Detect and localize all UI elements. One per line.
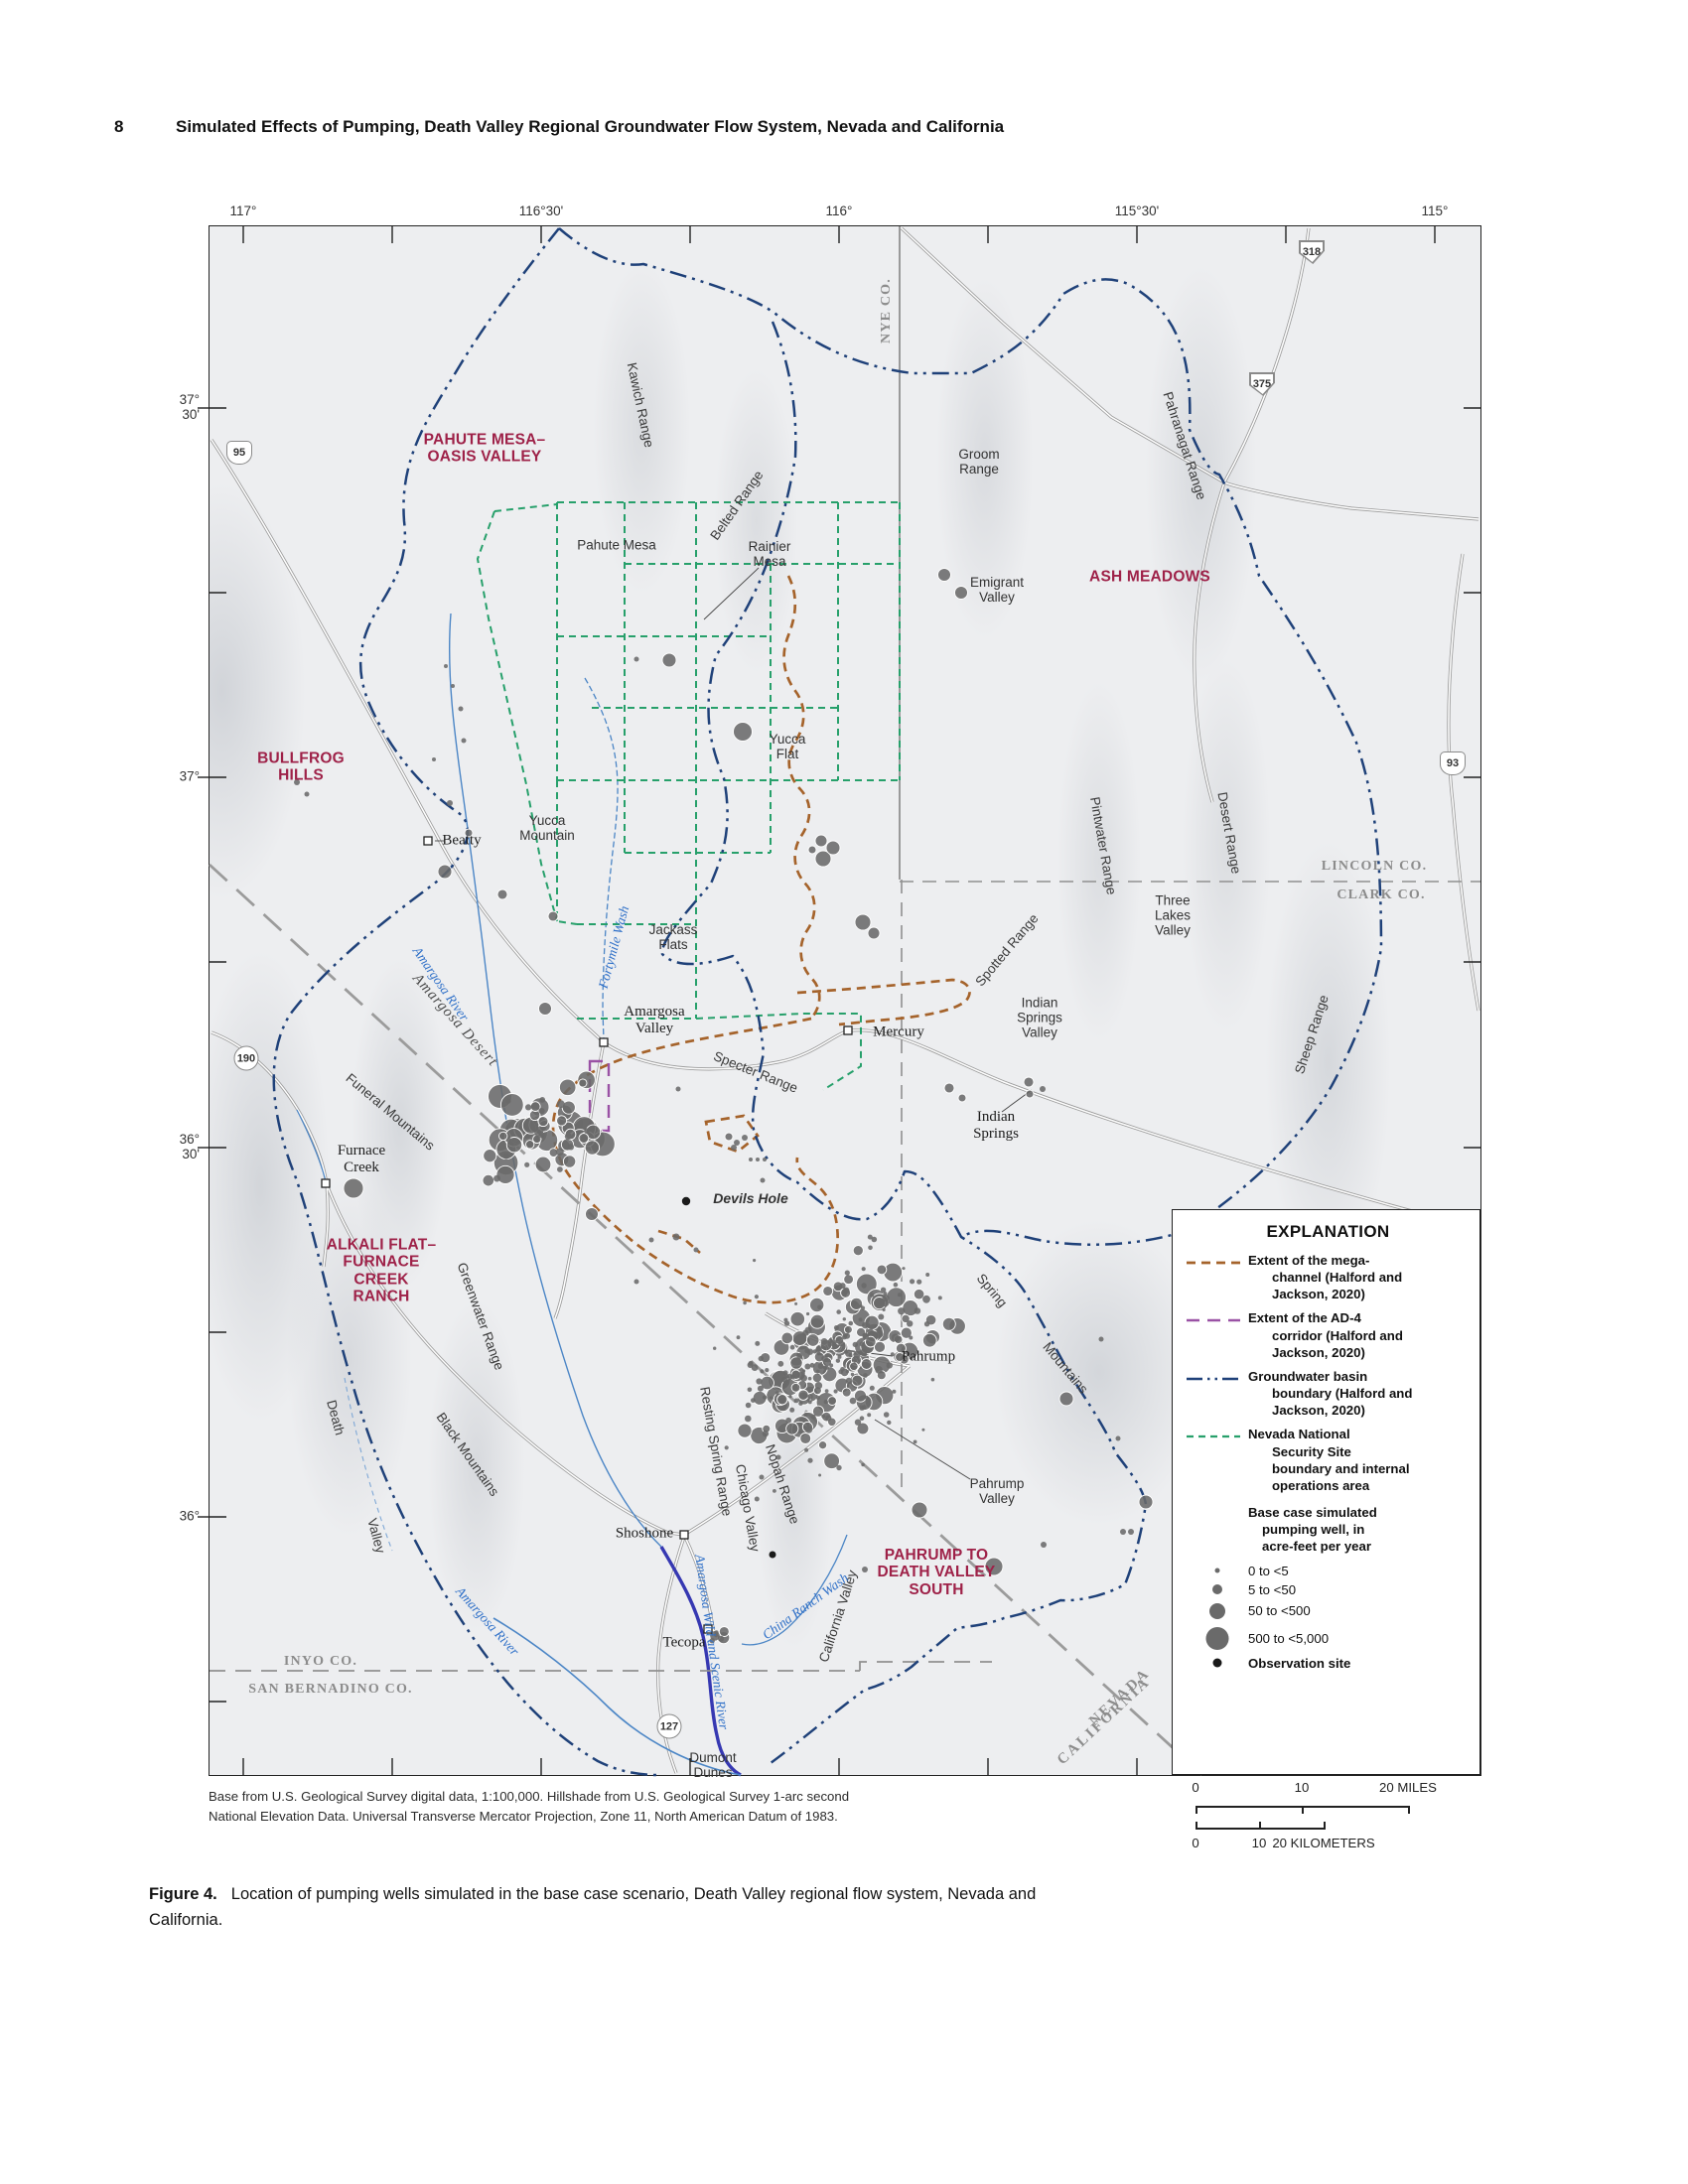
pumping-well: [840, 1367, 845, 1372]
pumping-well: [818, 1363, 824, 1369]
pumping-well: [763, 1158, 767, 1161]
pumping-well: [860, 1341, 865, 1346]
pumping-well: [914, 1307, 921, 1314]
legend-size-50-to-500: 50 to <500: [1187, 1601, 1470, 1621]
pumping-well: [734, 723, 753, 742]
pumping-well: [816, 1351, 820, 1355]
pumping-well: [790, 1375, 795, 1380]
pumping-well: [1120, 1529, 1126, 1535]
pumping-well: [794, 1302, 797, 1305]
well-size-symbol: [1204, 1564, 1230, 1577]
pumping-well: [804, 1413, 808, 1417]
axis-top-116: 116°: [826, 204, 853, 218]
pumping-well: [483, 1174, 494, 1186]
pumping-well: [854, 1390, 866, 1402]
pumping-well: [815, 1382, 822, 1389]
pumping-well: [538, 1117, 548, 1127]
axis-top-116-30: 116°30': [519, 204, 564, 218]
pumping-well: [853, 1351, 860, 1358]
pumping-well: [662, 653, 676, 667]
pumping-well: [786, 1423, 798, 1434]
legend-swatch-mega: [1187, 1258, 1240, 1268]
pumping-well: [1026, 1090, 1034, 1098]
pumping-well: [838, 1340, 844, 1346]
pumping-well: [865, 1396, 869, 1400]
map-figure: PAHUTE MESA– OASIS VALLEYASH MEADOWSBULL…: [209, 225, 1481, 1776]
pumping-well: [938, 1296, 942, 1299]
pumping-well: [756, 1378, 762, 1384]
pumping-well: [870, 1386, 875, 1391]
pumping-well: [898, 1307, 905, 1314]
pumping-well: [568, 1144, 574, 1150]
axis-left-36-30: 36° 30': [180, 1133, 200, 1162]
pumping-well: [870, 1293, 874, 1297]
pumping-well: [781, 1377, 787, 1383]
pumping-well: [525, 1104, 531, 1110]
pumping-well: [850, 1362, 859, 1371]
well-size-symbol: [1204, 1625, 1230, 1652]
observation-site: [682, 1197, 690, 1205]
pumping-well: [634, 657, 639, 662]
page-number: 8: [114, 117, 176, 137]
pumping-well: [538, 1108, 544, 1114]
pumping-well: [821, 1338, 828, 1345]
pumping-well: [585, 1141, 599, 1155]
pumping-well: [579, 1079, 587, 1087]
pumping-well: [804, 1364, 810, 1370]
pumping-well: [944, 1083, 954, 1093]
pumping-well: [465, 829, 473, 837]
pumping-well: [851, 1373, 854, 1376]
pumping-well: [294, 779, 300, 785]
pumping-well: [808, 846, 816, 854]
route-shield-190: 190: [234, 1046, 259, 1071]
pumping-well: [559, 1079, 576, 1096]
pumping-well: [891, 1352, 895, 1356]
pumping-well: [868, 1246, 873, 1251]
scale-km-10: 10: [1252, 1836, 1267, 1850]
legend-swatch-nnss: [1187, 1432, 1240, 1441]
pumping-well: [438, 865, 452, 879]
pumping-well: [790, 1345, 795, 1350]
pumping-well: [863, 1353, 867, 1357]
pumping-well: [922, 1333, 936, 1347]
pumping-well: [810, 1363, 815, 1368]
pumping-well: [853, 1358, 857, 1362]
pumping-well: [810, 1297, 824, 1311]
pumping-well: [826, 841, 840, 855]
well-size-symbol: [1204, 1582, 1230, 1596]
pumping-well: [825, 1389, 829, 1393]
axis-top-117: 117°: [230, 204, 257, 218]
pumping-well: [765, 1368, 769, 1372]
pumping-well: [524, 1162, 529, 1167]
pumping-well: [958, 1094, 966, 1102]
town-square-shoshone: [680, 1531, 688, 1539]
pumping-well: [788, 1395, 791, 1398]
pumping-well: [548, 911, 558, 921]
pumping-well: [305, 792, 310, 797]
pumping-well: [844, 1275, 854, 1285]
pumping-well: [819, 1441, 827, 1449]
pumping-well: [557, 1116, 567, 1126]
town-square-furnace-creek: [322, 1179, 330, 1187]
scale-km-20: 20 KILOMETERS: [1272, 1836, 1374, 1850]
pumping-well: [861, 1283, 866, 1288]
pumping-well: [496, 1165, 514, 1183]
pumping-well: [538, 1132, 544, 1138]
nnss-boundary: [478, 502, 900, 1090]
pumping-well: [821, 1355, 828, 1362]
pumping-well: [462, 739, 467, 744]
pumping-well: [828, 1397, 837, 1406]
pumping-well: [459, 707, 464, 712]
legend-observation-site: Observation site: [1187, 1656, 1470, 1671]
pumping-well: [878, 1314, 884, 1320]
route-shield-127: 127: [657, 1714, 682, 1739]
pumping-well: [884, 1412, 890, 1418]
pumping-well: [853, 1342, 858, 1347]
pumping-well: [773, 1489, 776, 1493]
town-square-amargosa-valley: [600, 1038, 608, 1046]
pumping-well: [852, 1375, 863, 1386]
pumping-well: [800, 1433, 811, 1444]
pumping-well: [746, 1403, 752, 1409]
pumping-well: [823, 1346, 826, 1349]
pumping-well: [828, 1339, 832, 1343]
pumping-well: [1024, 1077, 1034, 1087]
pumping-well: [734, 1140, 740, 1146]
pumping-well: [1059, 1392, 1073, 1406]
pumping-well: [725, 1445, 729, 1449]
axis-top-115: 115°: [1422, 204, 1449, 218]
pumping-well: [860, 1416, 865, 1421]
pumping-well: [738, 1424, 752, 1437]
pumping-well: [942, 1317, 955, 1330]
scale-miles-20: 20 MILES: [1379, 1780, 1437, 1795]
pumping-well: [745, 1416, 752, 1423]
pumping-well: [497, 889, 507, 899]
pumping-well: [849, 1353, 853, 1357]
pumping-well: [1099, 1337, 1104, 1342]
pumping-well: [1128, 1529, 1134, 1535]
pumping-well: [907, 1320, 913, 1326]
fortymile-wash-stream: [585, 678, 618, 1040]
pumping-well: [806, 1334, 819, 1347]
pumping-well: [586, 1208, 599, 1221]
axis-top-115-30: 115°30': [1115, 204, 1160, 218]
pumping-well: [812, 1373, 822, 1383]
legend-item-nnss: Nevada National Security Site boundary a…: [1187, 1426, 1470, 1494]
pumping-well: [344, 1178, 363, 1198]
well-size-symbol: [1204, 1601, 1230, 1621]
pumping-well: [855, 1420, 861, 1426]
pumping-well: [807, 1458, 812, 1463]
pumping-well: [853, 1246, 863, 1256]
pumping-well: [539, 1003, 552, 1016]
pumping-well: [859, 1317, 863, 1321]
pumping-well: [922, 1296, 930, 1303]
pumping-well: [432, 757, 436, 761]
pumping-well: [484, 1150, 496, 1162]
pumping-well: [834, 1325, 839, 1330]
pumping-well: [743, 1301, 747, 1305]
observation-site: [770, 1552, 776, 1559]
legend-item-ad4: Extent of the AD-4 corridor (Halford and…: [1187, 1309, 1470, 1360]
pumping-well: [843, 1317, 846, 1320]
pumping-well: [877, 1265, 887, 1275]
pumping-well: [800, 1375, 807, 1382]
pumping-well: [719, 1627, 729, 1637]
pumping-well: [794, 1399, 799, 1404]
pumping-well: [763, 1395, 767, 1399]
pumping-well: [802, 1369, 805, 1372]
pumping-well: [829, 1363, 833, 1367]
pumping-well: [1139, 1495, 1153, 1509]
town-square-beatty: [424, 837, 432, 845]
pumping-well: [914, 1440, 917, 1444]
pumping-well: [713, 1347, 716, 1350]
report-page: 8Simulated Effects of Pumping, Death Val…: [0, 0, 1688, 2184]
pumping-well: [844, 1325, 852, 1333]
pumping-well: [844, 1350, 848, 1354]
pumping-well: [761, 1178, 766, 1183]
pumping-well: [887, 1362, 893, 1368]
state-line: [210, 865, 1202, 1775]
pumping-well: [842, 1388, 851, 1397]
pumping-well: [676, 1087, 681, 1092]
pumping-well: [855, 914, 871, 930]
pumping-well: [777, 1361, 783, 1367]
pumping-well: [909, 1336, 913, 1340]
page-header: 8Simulated Effects of Pumping, Death Val…: [114, 117, 1004, 137]
axis-left-36: 36°: [180, 1510, 200, 1525]
pumping-well: [1041, 1542, 1047, 1548]
pumping-well: [556, 1148, 564, 1156]
pumping-well: [775, 1391, 779, 1395]
pumping-well: [447, 800, 453, 806]
town-square-tecopa: [704, 1625, 712, 1633]
pumping-well: [878, 1326, 882, 1330]
pumping-well: [749, 1158, 753, 1161]
legend-title: EXPLANATION: [1187, 1222, 1470, 1242]
pumping-well: [770, 1396, 773, 1399]
pumping-well: [755, 1341, 760, 1346]
pumping-well: [824, 1400, 828, 1404]
axis-left-37-30: 37° 30': [180, 393, 200, 423]
legend-item-mega: Extent of the mega- channel (Halford and…: [1187, 1252, 1470, 1302]
pumping-well: [565, 1133, 572, 1140]
route-shield-95: 95: [226, 441, 252, 465]
pumping-well: [894, 1283, 899, 1288]
pumping-well: [526, 1141, 534, 1149]
pumping-well: [499, 1132, 507, 1140]
pumping-well: [849, 1321, 854, 1326]
pumping-well: [1116, 1436, 1121, 1441]
pumping-well: [921, 1429, 924, 1432]
pumping-well: [898, 1293, 902, 1297]
pumping-well: [805, 1426, 813, 1433]
pumping-well: [955, 587, 968, 600]
pumping-well: [493, 1175, 500, 1182]
pumping-well: [500, 1094, 523, 1117]
base-credit: Base from U.S. Geological Survey digital…: [209, 1787, 849, 1828]
pumping-well: [798, 1390, 808, 1400]
pumping-well: [808, 1377, 812, 1381]
pumping-well: [763, 1431, 769, 1436]
pumping-well: [865, 1362, 870, 1367]
pumping-well: [790, 1311, 805, 1326]
pumping-well: [791, 1383, 800, 1392]
pumping-well: [755, 1295, 759, 1298]
pumping-well: [862, 1567, 868, 1572]
pumping-well: [776, 1455, 781, 1460]
pumping-well: [938, 569, 951, 582]
pumping-well: [834, 1389, 838, 1393]
pumping-well: [815, 835, 827, 847]
pumping-well: [884, 1263, 903, 1282]
pumping-well: [444, 664, 448, 668]
pumping-well: [811, 1415, 816, 1420]
pumping-well: [912, 1502, 927, 1518]
legend-swatch-basin: [1187, 1374, 1240, 1384]
pumping-well: [807, 1394, 812, 1399]
legend-wells-header: Base case simulated pumping well, in acr…: [1248, 1504, 1470, 1555]
pumping-well: [742, 1135, 748, 1141]
pumping-well: [863, 1373, 868, 1378]
pumping-well: [845, 1271, 850, 1276]
legend: EXPLANATION Extent of the mega- channel …: [1172, 1209, 1480, 1775]
pumping-well: [649, 1238, 654, 1243]
pumping-well: [896, 1343, 906, 1353]
scale-bar: 01020 MILES01020 KILOMETERS: [1192, 1780, 1489, 1865]
pumping-well: [865, 1323, 870, 1328]
pumping-well: [777, 1395, 787, 1405]
leader-lines: [435, 568, 1032, 1479]
pumping-well: [859, 1304, 862, 1307]
pumping-well: [758, 1386, 764, 1392]
pumping-well: [725, 1133, 733, 1141]
pumping-well: [931, 1378, 935, 1382]
scale-miles-0: 0: [1192, 1780, 1198, 1795]
pumping-well: [673, 1234, 680, 1241]
pumping-well: [867, 1413, 871, 1417]
pumping-well: [817, 1305, 822, 1310]
legend-size-5-to-50: 5 to <50: [1187, 1582, 1470, 1597]
rivers: [297, 614, 847, 1775]
pumping-well: [887, 1421, 891, 1425]
pumping-well: [892, 1334, 900, 1342]
pumping-well: [825, 1366, 829, 1370]
figure-caption: Figure 4.Location of pumping wells simul…: [149, 1882, 1107, 1933]
pumping-well: [861, 1463, 865, 1467]
observation-site-symbol: [1204, 1656, 1230, 1670]
pumping-well: [737, 1335, 741, 1339]
running-title: Simulated Effects of Pumping, Death Vall…: [176, 117, 1004, 136]
pumping-well: [755, 1497, 760, 1502]
pumping-well: [862, 1405, 867, 1410]
pumping-well: [816, 1396, 820, 1400]
pumping-well: [850, 1398, 857, 1405]
pumping-well: [451, 684, 455, 688]
pumping-well: [808, 1401, 812, 1405]
pumping-well: [718, 1636, 724, 1642]
pumping-well: [823, 1287, 833, 1297]
pumping-well: [875, 1366, 883, 1374]
pumping-well: [846, 1378, 853, 1385]
pumping-wells: [294, 569, 1153, 1644]
pumping-well: [802, 1330, 808, 1336]
axis-left-37: 37°: [180, 770, 200, 785]
pumping-well: [916, 1280, 921, 1285]
legend-swatch-ad4: [1187, 1315, 1240, 1325]
pumping-well: [753, 1259, 756, 1262]
pumping-well: [557, 1100, 565, 1108]
pumping-well: [796, 1353, 802, 1359]
pumping-well: [781, 1332, 793, 1344]
pumping-well: [506, 1138, 511, 1143]
pumping-well: [785, 1418, 791, 1424]
pumping-well: [838, 1355, 842, 1359]
legend-size-0-to-5: 0 to <5: [1187, 1564, 1470, 1578]
pumping-well: [760, 1369, 764, 1373]
pumping-well: [883, 1292, 887, 1296]
pumping-well: [852, 1301, 856, 1305]
pumping-well: [714, 1630, 718, 1634]
pumping-well: [539, 1097, 545, 1103]
pumping-well: [985, 1558, 1003, 1575]
pumping-well: [759, 1356, 764, 1361]
pumping-well: [749, 1361, 754, 1366]
pumping-well: [506, 1099, 511, 1104]
pumping-well: [751, 1398, 756, 1403]
pumping-well: [694, 1248, 699, 1253]
pumping-well: [1040, 1086, 1046, 1092]
pumping-well: [836, 1465, 841, 1470]
pumping-well: [821, 1415, 825, 1419]
pumping-well: [868, 927, 880, 939]
pumping-well: [816, 1346, 822, 1352]
pumping-well: [924, 1321, 929, 1326]
pumping-well: [862, 1333, 867, 1338]
pumping-well: [563, 1156, 575, 1167]
pumping-well: [748, 1388, 753, 1393]
pumping-well: [846, 1370, 849, 1373]
pumping-well: [903, 1267, 906, 1270]
pumping-well: [806, 1312, 809, 1315]
pumping-well: [810, 1314, 824, 1328]
pumping-well: [840, 1283, 846, 1289]
pumping-well: [579, 1134, 589, 1144]
pumping-well: [804, 1348, 809, 1353]
pumping-well: [914, 1289, 924, 1299]
pumping-well: [868, 1235, 873, 1240]
pumping-well: [862, 1267, 866, 1271]
scale-km-0: 0: [1192, 1836, 1198, 1850]
pumping-well: [892, 1390, 896, 1394]
pumping-well: [816, 1370, 820, 1374]
pumping-well: [925, 1273, 929, 1277]
legend-size-500-to-5-000: 500 to <5,000: [1187, 1625, 1470, 1652]
route-shield-93: 93: [1440, 751, 1466, 775]
pumping-well: [896, 1353, 905, 1362]
pumping-well: [783, 1318, 787, 1322]
pumping-well: [634, 1280, 639, 1285]
pumping-well: [842, 1334, 847, 1339]
pumping-well: [818, 1474, 821, 1477]
mega-channel: [553, 576, 969, 1302]
pumping-well: [804, 1448, 808, 1452]
